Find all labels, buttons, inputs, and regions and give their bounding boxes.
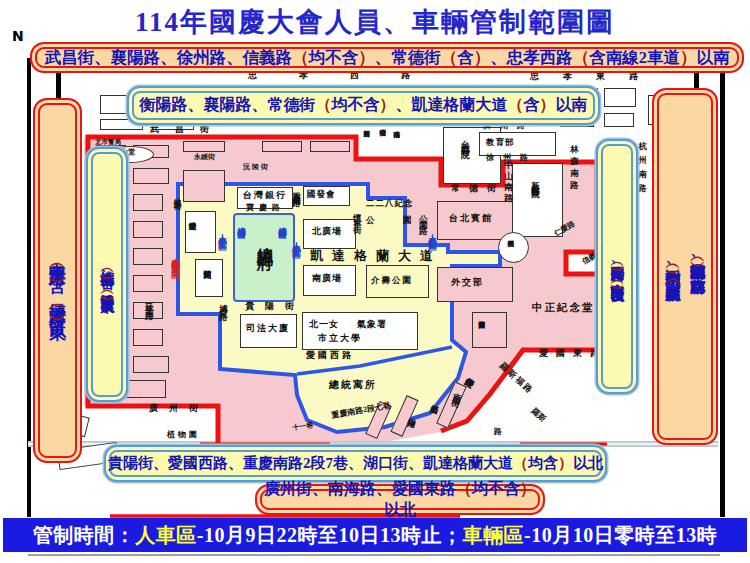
banner-vehicle-zone-west-boundary-text: 中華路（不含）、博愛路（含）以東 (46, 248, 69, 313)
banner-vehicle-zone-west-boundary: 中華路（不含）、博愛路（含）以東 (33, 98, 82, 463)
banner-east-col1: 中山南路（含單側北向南車道）、林森南路、 (685, 102, 710, 432)
banner-vehicle-zone-north-boundary: 武昌街、襄陽路、徐州路、信義路（均不含）、常德街（含）、忠孝西路（含南線2車道）… (30, 42, 744, 73)
banner-vehicle-zone-south-boundary-text: 廣州街、南海路、愛國東路（均不含）以北 (257, 479, 543, 521)
control-time-segment: -10月9日22時至10日13時止； (197, 522, 463, 549)
banner-people-zone-south-boundary: 貴陽街、愛國西路、重慶南路2段7巷、湖口街、凱達格蘭大道（均含）以北 (104, 445, 607, 482)
map-page: 114年國慶大會人員、車輛管制範圍圖 N 忠孝西路忠孝東路武昌街永綏街沅陵街寶慶… (0, 0, 750, 563)
control-time-bar: 管制時間：人車區-10月9日22時至10日13時止；車輛區-10月10日零時至1… (3, 518, 747, 552)
banner-vehicle-zone-east-boundary-text: 中山南路（含單側北向南車道）、林森南路、 杭州南路（均不含）、羅斯福路（含）以西 (660, 102, 710, 432)
control-time-segment: 車輛區 (463, 522, 525, 549)
banner-people-zone-east-boundary: 公園路（含）、中山南路（不含）以西 (596, 139, 638, 394)
banner-vehicle-zone-south-boundary: 廣州街、南海路、愛國東路（均不含）以北 (255, 484, 545, 515)
banner-people-zone-north-boundary-text: 衡陽路、襄陽路、常德街（均不含）、凱達格蘭大道（含）以南 (140, 95, 588, 116)
banner-east-col2: 杭州南路（均不含）、羅斯福路（含）以西 (660, 102, 685, 432)
control-time-segment: 人車區 (135, 522, 197, 549)
banner-people-zone-north-boundary: 衡陽路、襄陽路、常德街（均不含）、凱達格蘭大道（含）以南 (127, 86, 600, 125)
banner-vehicle-zone-north-boundary-text: 武昌街、襄陽路、徐州路、信義路（均不含）、常德街（含）、忠孝西路（含南線2車道）… (45, 47, 730, 69)
banner-people-zone-south-boundary-text: 貴陽街、愛國西路、重慶南路2段7巷、湖口街、凱達格蘭大道（均含）以北 (108, 454, 603, 473)
banner-people-zone-east-boundary-text: 公園路（含）、中山南路（不含）以西 (608, 255, 626, 278)
banner-people-zone-west-boundary: 桃源街（不含）、博愛路（含）以東 (86, 147, 128, 402)
banner-people-zone-west-boundary-text: 桃源街（不含）、博愛路（含）以東 (98, 260, 116, 290)
banner-vehicle-zone-east-boundary: 中山南路（含單側北向南車道）、林森南路、 杭州南路（均不含）、羅斯福路（含）以西 (652, 88, 718, 445)
control-time-segment: -10月10日零時至13時 (524, 522, 717, 549)
control-time-segment: 管制時間： (33, 522, 136, 549)
